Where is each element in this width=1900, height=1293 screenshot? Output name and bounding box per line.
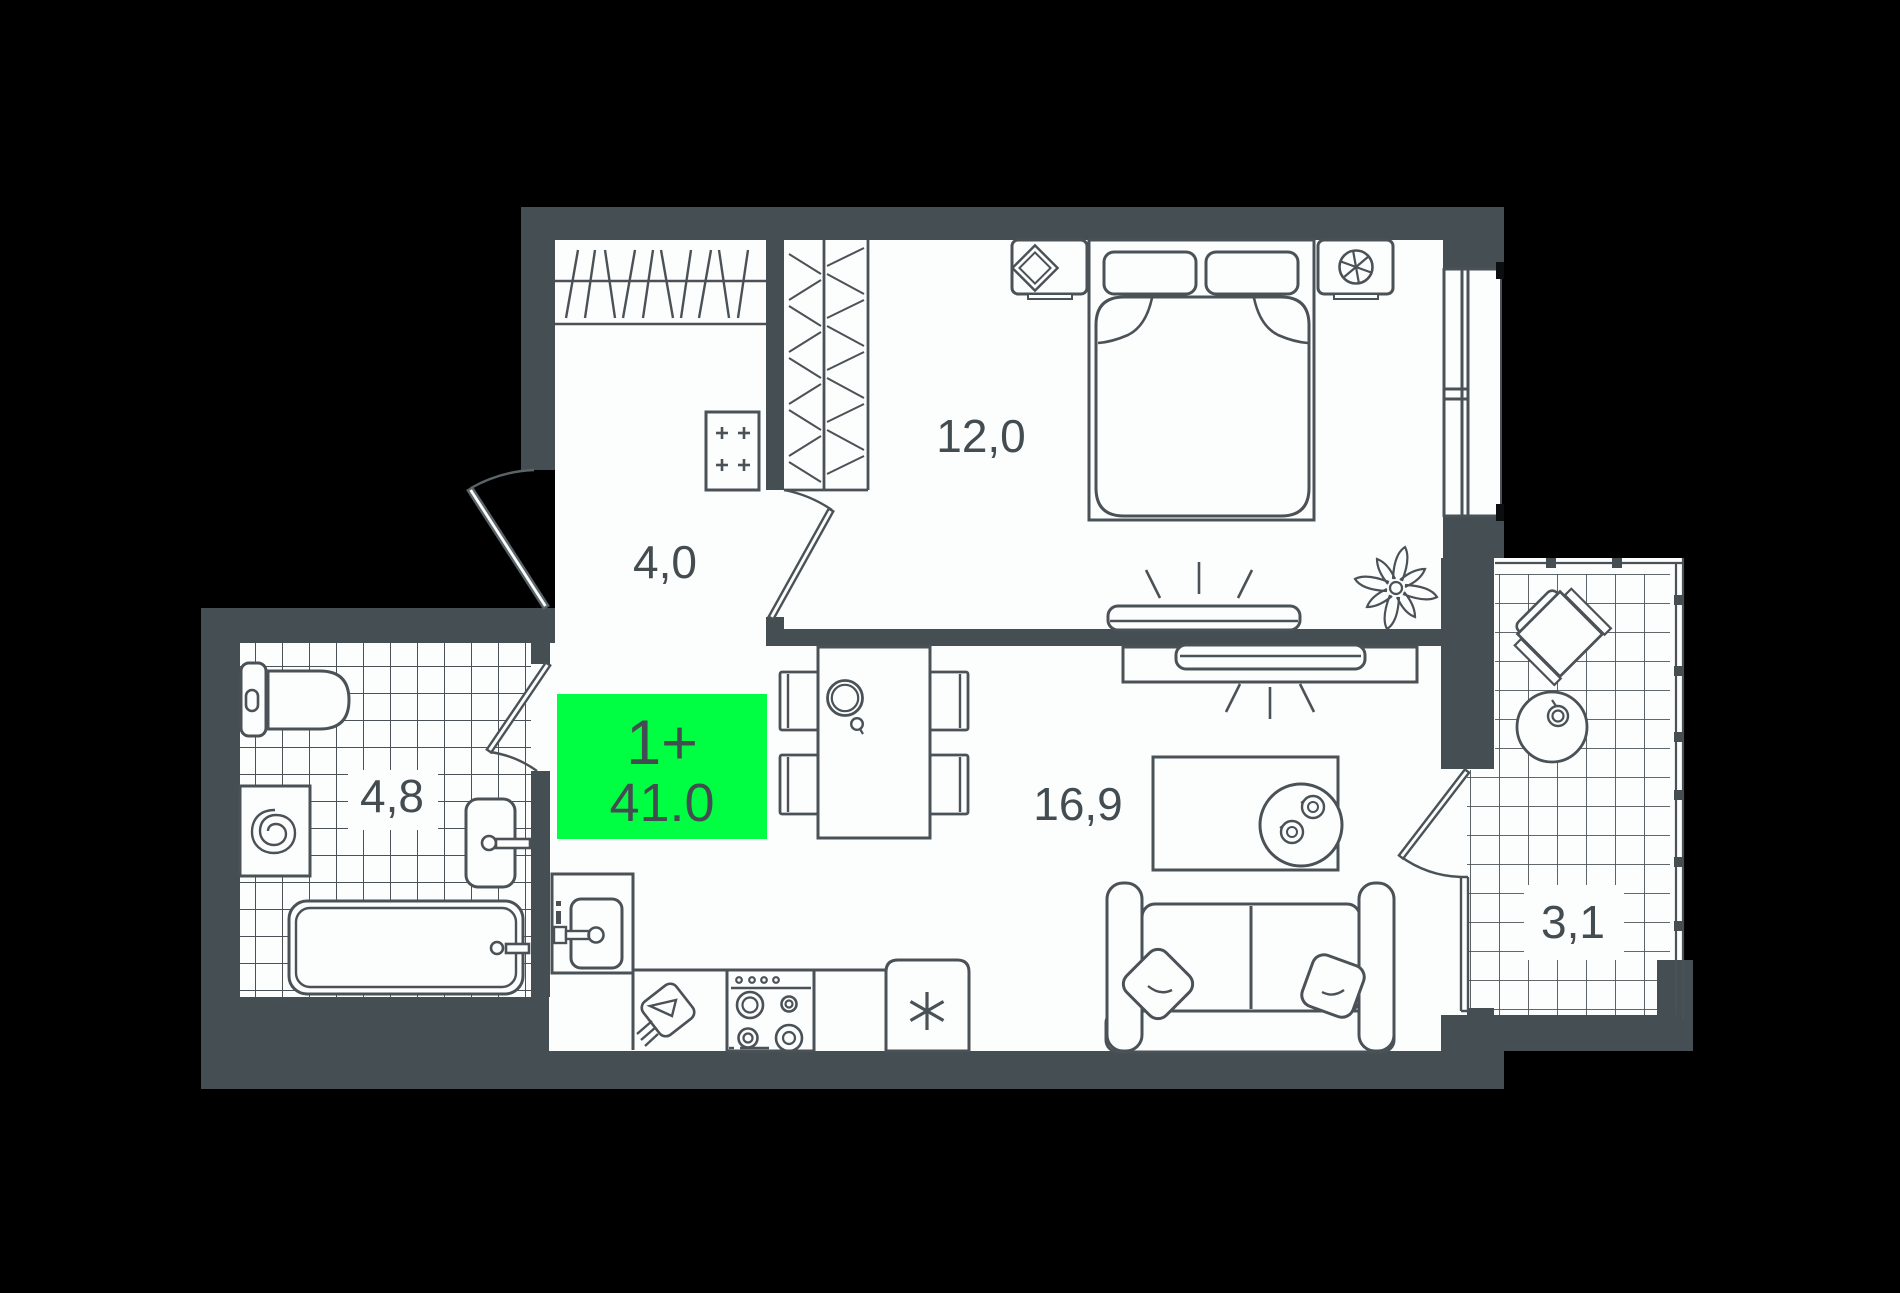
svg-text:41.0: 41.0 — [609, 773, 714, 833]
svg-text:16,9: 16,9 — [1033, 778, 1123, 830]
svg-text:3,1: 3,1 — [1541, 896, 1605, 948]
svg-text:12,0: 12,0 — [936, 410, 1026, 462]
svg-text:1+: 1+ — [626, 708, 698, 778]
svg-text:4,0: 4,0 — [633, 536, 697, 588]
svg-text:4,8: 4,8 — [360, 770, 424, 822]
